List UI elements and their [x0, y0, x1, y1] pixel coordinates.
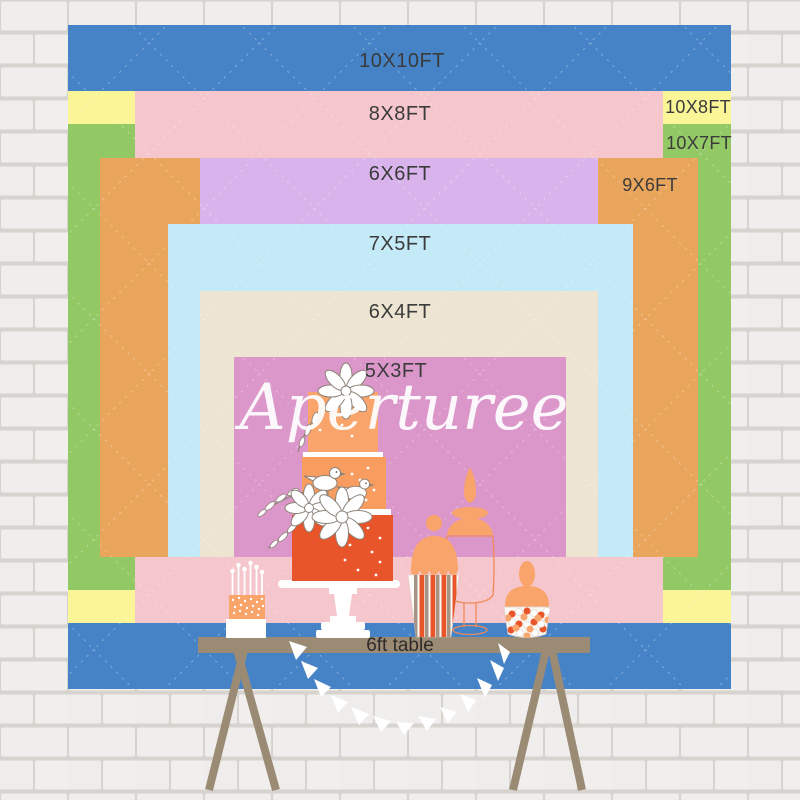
- daisy-big-icon: [312, 487, 372, 547]
- watermark-text: Aperturee: [235, 371, 569, 445]
- size-label-5x3ft: 5X3FT: [365, 360, 428, 382]
- size-label-6x6ft: 6X6FT: [369, 163, 432, 185]
- table-label: 6ft table: [366, 635, 434, 656]
- size-label-6x4ft: 6X4FT: [369, 301, 432, 323]
- size-label-9x6ft: 9X6FT: [622, 175, 678, 195]
- scene: 6ft table: [0, 0, 800, 800]
- size-label-10x7ft: 10X7FT: [666, 133, 732, 153]
- size-label-10x8ft: 10X8FT: [665, 97, 731, 117]
- cake-plate: [278, 580, 400, 588]
- size-label-8x8ft: 8X8FT: [369, 103, 432, 125]
- size-label-10x10ft: 10X10FT: [359, 50, 445, 72]
- backdrop-size-chart: 6ft table: [0, 0, 800, 800]
- dome-scallops: [411, 567, 458, 576]
- popcorn-stripes: [414, 575, 457, 637]
- size-label-7x5ft: 7X5FT: [369, 233, 432, 255]
